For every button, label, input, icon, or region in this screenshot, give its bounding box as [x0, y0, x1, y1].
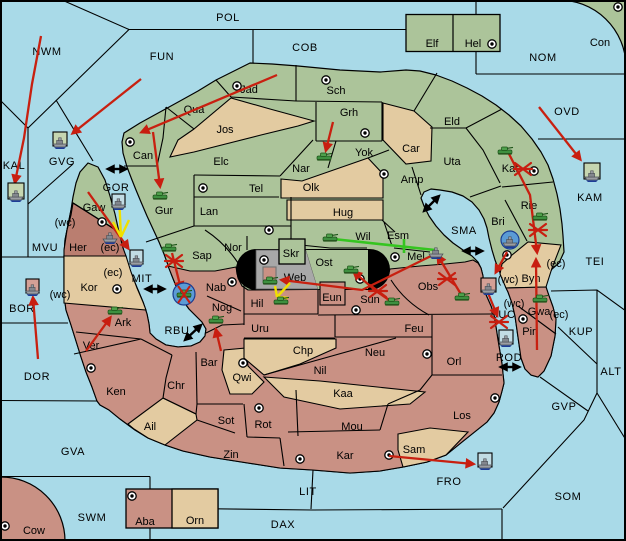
svg-text:Cow: Cow: [23, 525, 45, 537]
svg-text:GVA: GVA: [61, 446, 85, 458]
svg-text:BOR: BOR: [9, 303, 35, 315]
svg-text:Elc: Elc: [213, 156, 229, 168]
svg-text:Bri: Bri: [491, 216, 504, 228]
svg-text:Los: Los: [453, 410, 471, 422]
svg-text:Eun: Eun: [322, 292, 342, 304]
svg-text:(wc): (wc): [55, 217, 76, 229]
svg-text:MVU: MVU: [32, 242, 58, 254]
svg-text:LIT: LIT: [299, 486, 317, 498]
svg-text:(ec): (ec): [104, 267, 123, 279]
svg-text:RBU: RBU: [164, 325, 189, 337]
svg-text:MIT: MIT: [132, 273, 153, 285]
svg-text:ROD: ROD: [496, 352, 522, 364]
svg-text:POL: POL: [216, 12, 240, 24]
svg-text:Olk: Olk: [303, 182, 320, 194]
svg-text:Hil: Hil: [251, 298, 264, 310]
svg-text:Bar: Bar: [200, 357, 217, 369]
svg-text:Sam: Sam: [403, 444, 426, 456]
svg-text:Zin: Zin: [223, 449, 238, 461]
svg-text:GVG: GVG: [49, 156, 75, 168]
svg-text:FUN: FUN: [150, 51, 174, 63]
svg-text:Skr: Skr: [283, 248, 300, 260]
svg-text:(wc): (wc): [498, 274, 519, 286]
svg-text:Obs: Obs: [418, 281, 439, 293]
svg-text:SMA: SMA: [451, 225, 477, 237]
svg-text:Pir: Pir: [522, 326, 536, 338]
svg-text:Elf: Elf: [426, 38, 440, 50]
svg-text:SWM: SWM: [78, 512, 107, 524]
svg-text:(wc): (wc): [504, 298, 525, 310]
svg-text:Rot: Rot: [254, 419, 271, 431]
svg-text:Can: Can: [133, 150, 153, 162]
svg-text:Uta: Uta: [443, 156, 461, 168]
svg-text:Ken: Ken: [106, 386, 126, 398]
svg-text:NOM: NOM: [529, 52, 556, 64]
svg-text:Nil: Nil: [314, 365, 327, 377]
svg-text:Orn: Orn: [186, 515, 204, 527]
svg-text:TEI: TEI: [586, 256, 605, 268]
svg-text:Chr: Chr: [167, 380, 185, 392]
svg-text:ALT: ALT: [600, 366, 621, 378]
svg-text:Ost: Ost: [315, 257, 332, 269]
svg-text:Nog: Nog: [212, 302, 232, 314]
svg-text:KUP: KUP: [569, 326, 593, 338]
svg-text:Feu: Feu: [405, 323, 424, 335]
svg-text:Neu: Neu: [365, 347, 385, 359]
svg-text:Byn: Byn: [522, 273, 541, 285]
svg-text:KAL: KAL: [3, 160, 26, 172]
svg-text:Sch: Sch: [327, 85, 346, 97]
svg-text:Kaa: Kaa: [333, 388, 353, 400]
svg-text:Con: Con: [590, 37, 610, 49]
svg-text:Gur: Gur: [155, 205, 174, 217]
svg-text:Mou: Mou: [341, 421, 362, 433]
svg-text:Kor: Kor: [80, 282, 97, 294]
svg-text:GVP: GVP: [551, 401, 576, 413]
svg-text:Tel: Tel: [249, 183, 263, 195]
svg-text:Esm: Esm: [387, 230, 409, 242]
svg-text:DOR: DOR: [24, 371, 50, 383]
svg-text:Ail: Ail: [144, 421, 156, 433]
svg-text:GOR: GOR: [103, 182, 130, 194]
svg-text:Nar: Nar: [292, 163, 310, 175]
svg-text:Lan: Lan: [200, 206, 218, 218]
svg-text:Nor: Nor: [224, 242, 242, 254]
svg-text:Hug: Hug: [333, 207, 353, 219]
svg-text:Aba: Aba: [135, 516, 155, 528]
svg-text:(ec): (ec): [550, 309, 569, 321]
svg-text:Eld: Eld: [444, 116, 460, 128]
svg-text:SOM: SOM: [555, 491, 582, 503]
svg-text:Ark: Ark: [115, 317, 132, 329]
svg-text:KAM: KAM: [577, 192, 603, 204]
svg-text:Grh: Grh: [340, 107, 358, 119]
svg-text:Hel: Hel: [465, 38, 482, 50]
svg-text:Amp: Amp: [401, 174, 424, 186]
svg-text:Nab: Nab: [206, 282, 226, 294]
svg-text:(ec): (ec): [547, 258, 566, 270]
svg-text:Qwi: Qwi: [233, 372, 252, 384]
svg-text:Kar: Kar: [336, 450, 353, 462]
svg-text:COB: COB: [292, 42, 318, 54]
svg-text:Her: Her: [69, 242, 87, 254]
svg-text:Sap: Sap: [192, 250, 212, 262]
svg-text:OVD: OVD: [554, 106, 580, 118]
svg-text:Jos: Jos: [216, 124, 234, 136]
svg-text:Uru: Uru: [251, 323, 269, 335]
svg-text:Chp: Chp: [293, 345, 313, 357]
svg-text:Gwa: Gwa: [528, 306, 552, 318]
svg-text:Orl: Orl: [447, 356, 462, 368]
svg-text:(wc): (wc): [50, 289, 71, 301]
svg-text:Car: Car: [402, 143, 420, 155]
svg-text:FRO: FRO: [436, 476, 461, 488]
svg-text:DAX: DAX: [271, 519, 295, 531]
svg-text:Yok: Yok: [355, 147, 373, 159]
svg-text:Sot: Sot: [218, 415, 235, 427]
svg-text:Rie: Rie: [521, 200, 538, 212]
